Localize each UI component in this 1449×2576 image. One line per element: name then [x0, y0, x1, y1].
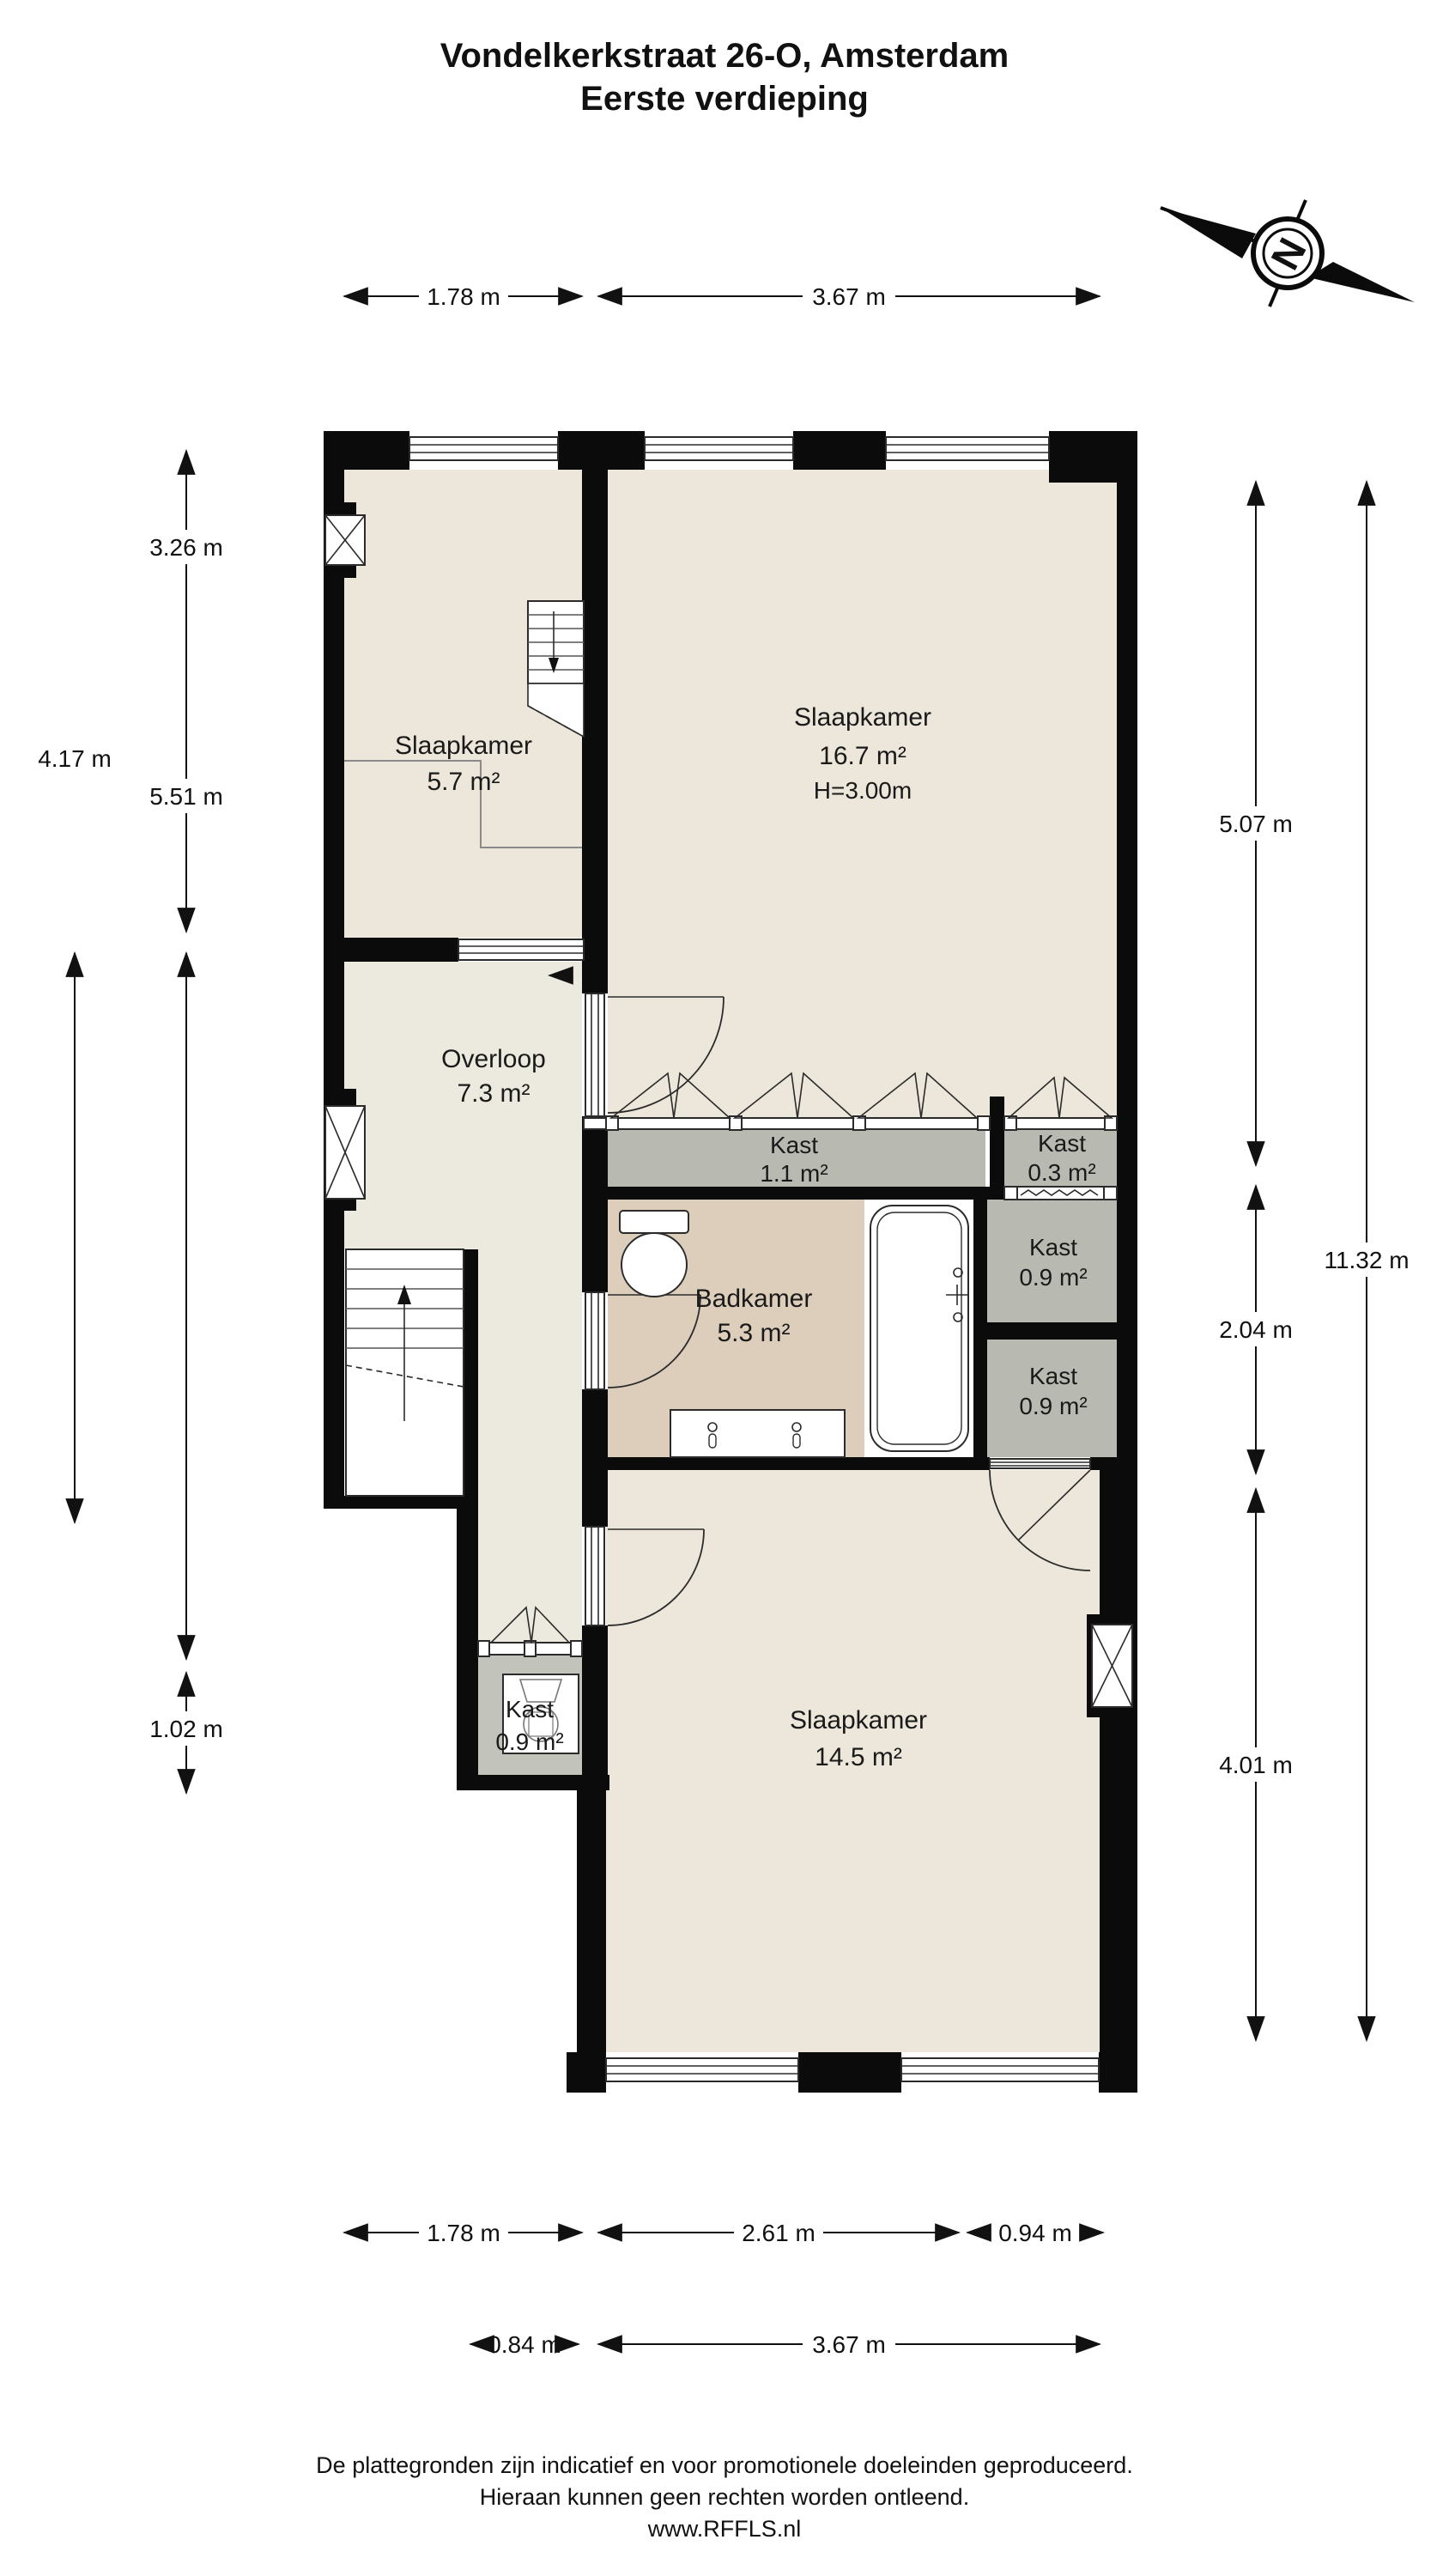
footer-line-1: De plattegronden zijn indicatief en voor…	[316, 2452, 1133, 2478]
footer-disclaimer: De plattegronden zijn indicatief en voor…	[316, 2452, 1133, 2542]
label-slaapkamer-groot-height: H=3.00m	[814, 777, 912, 804]
dim-left-2: 4.17 m	[38, 745, 112, 772]
flue-panel-mid-left-icon	[325, 1106, 365, 1199]
label-kast09-links-name: Kast	[506, 1696, 554, 1722]
label-kast09-links-area: 0.9 m²	[495, 1728, 563, 1755]
label-kast09-boven-area: 0.9 m²	[1019, 1264, 1087, 1291]
dim-bottom2-1: 0.84 m	[488, 2331, 561, 2358]
dim-bottom2-2: 3.67 m	[812, 2331, 886, 2358]
label-kast09-boven-name: Kast	[1029, 1234, 1077, 1261]
stair-main	[346, 1249, 464, 1496]
dim-right-1: 5.07 m	[1219, 811, 1293, 837]
dim-right-4: 4.01 m	[1219, 1752, 1293, 1778]
accordion-door-icon	[1004, 1187, 1117, 1200]
label-overloop-name: Overloop	[441, 1045, 546, 1073]
window-top-right	[886, 437, 1049, 460]
label-kast09-onder-name: Kast	[1029, 1363, 1077, 1389]
window-interior-overloop	[458, 939, 584, 960]
title-floor: Eerste verdieping	[580, 80, 869, 118]
dim-bottom1-3: 0.94 m	[998, 2220, 1072, 2246]
label-kast11-area: 1.1 m²	[760, 1160, 828, 1187]
footer-line-3: www.RFFLS.nl	[647, 2516, 802, 2542]
label-badkamer-name: Badkamer	[695, 1285, 813, 1313]
dim-right-3: 2.04 m	[1219, 1316, 1293, 1343]
label-kast11-name: Kast	[770, 1132, 818, 1158]
dim-top-2: 3.67 m	[812, 283, 886, 310]
flue-panel-right-icon	[1092, 1625, 1132, 1707]
window-bottom-left	[606, 2058, 798, 2081]
floorplan-drawing: Vondelkerkstraat 26-O, Amsterdam Eerste …	[0, 0, 1449, 2576]
label-slaapkamer-achter-name: Slaapkamer	[790, 1706, 927, 1735]
label-slaapkamer-groot-name: Slaapkamer	[794, 703, 931, 732]
title-address: Vondelkerkstraat 26-O, Amsterdam	[440, 37, 1009, 75]
label-slaapkamer-groot-area: 16.7 m²	[819, 742, 906, 770]
label-kast03-area: 0.3 m²	[1028, 1159, 1095, 1186]
dim-bottom1-1: 1.78 m	[427, 2220, 500, 2246]
label-slaapkamer-achter-area: 14.5 m²	[815, 1743, 902, 1771]
toilet-icon	[620, 1211, 688, 1297]
footer-line-2: Hieraan kunnen geen rechten worden ontle…	[480, 2484, 969, 2510]
window-top-left	[409, 437, 558, 460]
dim-left-1: 3.26 m	[149, 534, 223, 561]
label-badkamer-area: 5.3 m²	[717, 1319, 790, 1347]
dim-top-1: 1.78 m	[427, 283, 500, 310]
dim-bottom1-2: 2.61 m	[742, 2220, 815, 2246]
compass-rose-icon: N	[1161, 200, 1415, 307]
label-overloop-area: 7.3 m²	[457, 1079, 530, 1108]
floorplan-page: Vondelkerkstraat 26-O, Amsterdam Eerste …	[0, 0, 1449, 2576]
dim-left-3: 5.51 m	[149, 783, 223, 810]
window-bottom-right	[901, 2058, 1099, 2081]
label-slaapkamer-klein-name: Slaapkamer	[395, 732, 532, 760]
bathtub-icon	[870, 1206, 968, 1451]
window-top-mid	[645, 437, 793, 460]
label-kast03-name: Kast	[1038, 1130, 1086, 1157]
title-block: Vondelkerkstraat 26-O, Amsterdam Eerste …	[440, 37, 1009, 118]
label-kast09-onder-area: 0.9 m²	[1019, 1393, 1087, 1419]
label-slaapkamer-klein-area: 5.7 m²	[427, 768, 500, 796]
floor-kast-09-boven	[987, 1200, 1117, 1322]
flue-panel-top-left-icon	[325, 515, 365, 565]
dim-left-4: 1.02 m	[149, 1716, 223, 1742]
washbasin-icon	[670, 1410, 845, 1457]
dim-right-2: 11.32 m	[1324, 1247, 1409, 1273]
